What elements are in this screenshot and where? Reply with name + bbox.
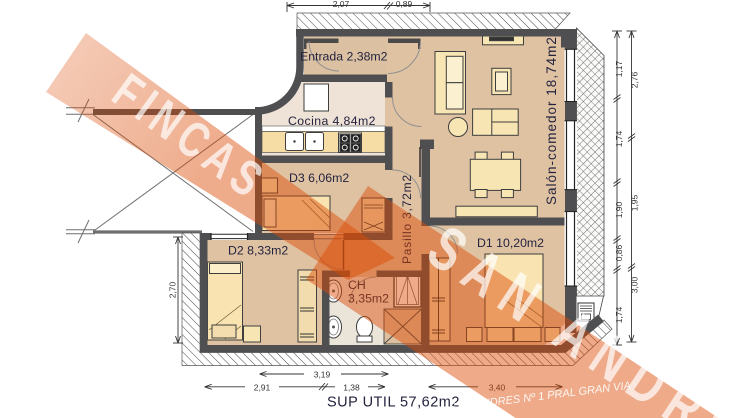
svg-text:1,95: 1,95 xyxy=(630,194,640,211)
svg-text:1,38: 1,38 xyxy=(343,383,360,393)
svg-text:1,90: 1,90 xyxy=(614,201,624,218)
svg-text:0,86: 0,86 xyxy=(614,244,624,261)
svg-text:3,00: 3,00 xyxy=(630,276,640,293)
svg-text:1,17: 1,17 xyxy=(614,60,624,77)
svg-text:SUP UTIL 57,62m2: SUP UTIL 57,62m2 xyxy=(327,395,460,411)
svg-text:2,70: 2,70 xyxy=(168,281,178,298)
svg-text:0,89: 0,89 xyxy=(396,0,413,9)
svg-text:Cocina 4,84m2: Cocina 4,84m2 xyxy=(288,114,376,128)
svg-text:3,19: 3,19 xyxy=(314,370,331,380)
svg-text:D3 6,06m2: D3 6,06m2 xyxy=(289,171,349,185)
svg-text:1,74: 1,74 xyxy=(614,130,624,147)
svg-text:2,76: 2,76 xyxy=(630,71,640,88)
svg-text:D2 8,33m2: D2 8,33m2 xyxy=(228,244,288,258)
svg-text:Entrada 2,38m2: Entrada 2,38m2 xyxy=(300,50,388,64)
svg-text:Salón-comedor 18,74m2: Salón-comedor 18,74m2 xyxy=(544,36,559,205)
svg-text:2,91: 2,91 xyxy=(254,383,271,393)
svg-text:2,07: 2,07 xyxy=(333,0,350,9)
